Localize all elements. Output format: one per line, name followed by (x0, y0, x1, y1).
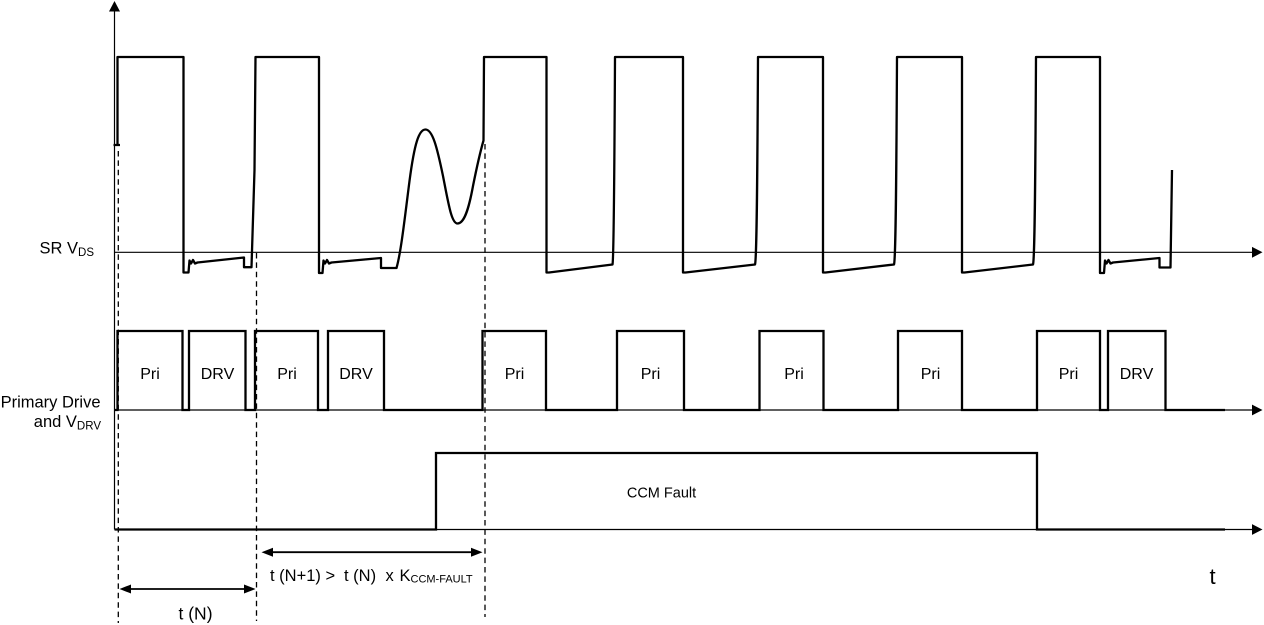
svg-text:t (N): t (N) (344, 567, 376, 585)
svg-text:DRV: DRV (1120, 366, 1154, 383)
svg-text:Pri: Pri (1059, 366, 1079, 383)
svg-text:DRV: DRV (339, 366, 373, 383)
svg-text:Pri: Pri (505, 366, 525, 383)
svg-text:Pri: Pri (140, 366, 160, 383)
svg-text:K: K (400, 567, 411, 585)
svg-text:Pri: Pri (784, 366, 804, 383)
svg-text:Pri: Pri (277, 366, 297, 383)
svg-text:DRV: DRV (201, 366, 235, 383)
svg-text:Pri: Pri (921, 366, 941, 383)
svg-text:t (N+1) >: t (N+1) > (270, 567, 335, 585)
svg-text:t: t (1210, 564, 1216, 589)
svg-text:x: x (386, 567, 395, 585)
svg-text:CCM Fault: CCM Fault (627, 486, 696, 502)
svg-text:Pri: Pri (641, 366, 661, 383)
svg-text:t (N): t (N) (179, 604, 213, 624)
svg-text:CCM-FAULT: CCM-FAULT (411, 574, 473, 586)
svg-text:Primary Drive: Primary Drive (1, 394, 101, 412)
